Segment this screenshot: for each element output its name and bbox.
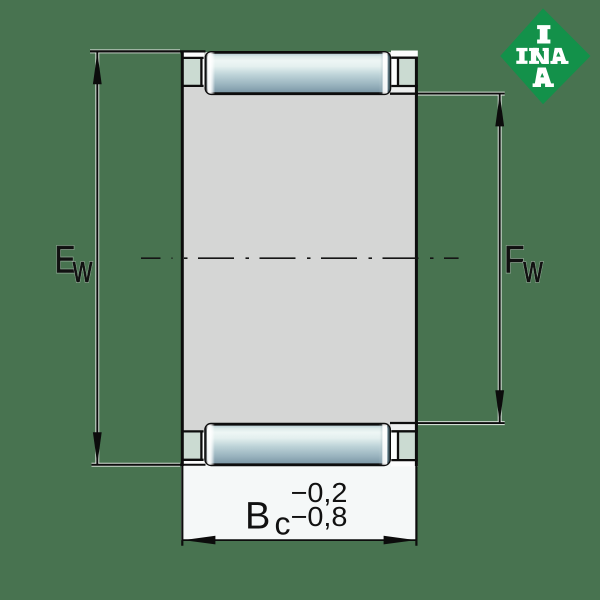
svg-text:B: B [245,496,270,538]
svg-text:F: F [504,239,525,281]
svg-text:c: c [275,506,291,542]
svg-text:w: w [523,249,544,291]
svg-text:−0,8: −0,8 [291,501,348,532]
svg-text:w: w [72,249,93,291]
